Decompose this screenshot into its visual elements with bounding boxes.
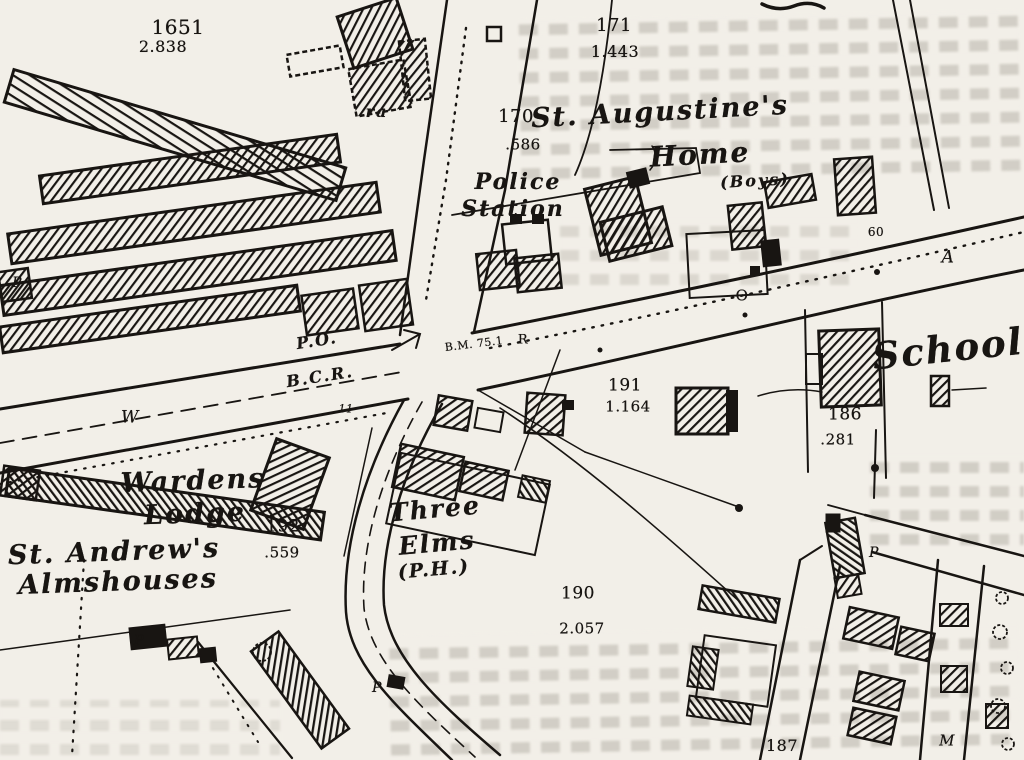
terrace-buildings [0,70,413,353]
parcel-191-buildings [525,388,738,435]
bottom-right-buildings [687,514,1014,750]
police-station-buildings [476,214,561,292]
st-augustines-home-buildings [585,157,876,298]
map-page: St. Augustine'sHome(Boys)PoliceStationSc… [0,0,1024,760]
bottom-left-buildings [129,624,405,748]
top-centre-buildings [287,0,501,116]
school-buildings [806,329,949,407]
map-geometry [0,0,1024,760]
